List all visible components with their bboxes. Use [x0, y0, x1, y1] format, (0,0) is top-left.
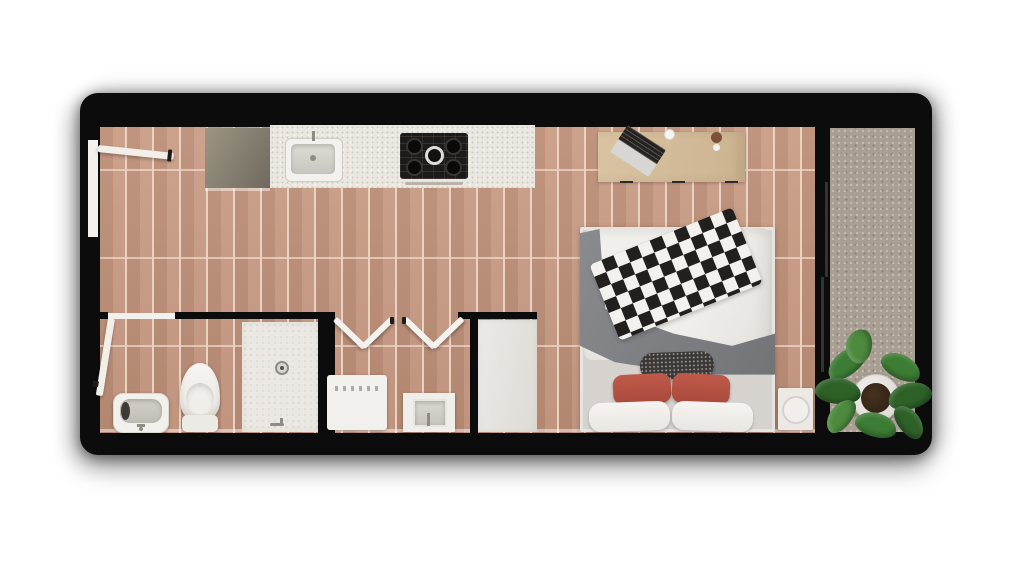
gas-stove: [400, 133, 468, 179]
wall-bathroom-stub: [100, 312, 108, 319]
washer-control-panel: [335, 386, 379, 391]
desk-drawer-pull: [620, 181, 633, 183]
closet-door-panel: [478, 320, 537, 432]
kitchen-sink: [285, 138, 343, 182]
washbasin: [113, 393, 169, 433]
shower-drain: [275, 361, 289, 375]
desk-saucer: [713, 144, 720, 151]
shower-drain-hole: [280, 366, 284, 370]
refrigerator: [205, 128, 270, 188]
utility-sink-basin: [413, 399, 447, 427]
stove-center-burner: [425, 146, 444, 165]
nightstand: [778, 388, 813, 430]
desk-drawer-pull: [725, 181, 738, 183]
white-pillow-left: [589, 401, 671, 433]
plant-soil: [861, 383, 891, 413]
sliding-glass-door-panel-1: [825, 182, 828, 277]
toilet-base: [182, 415, 218, 432]
white-pillow-right: [672, 401, 754, 433]
sliding-glass-door-panel-2: [821, 277, 824, 372]
stove-burner: [445, 138, 462, 155]
refrigerator-front-edge: [205, 188, 270, 191]
stove-burner: [406, 138, 423, 155]
wall-bathroom-top: [175, 312, 335, 319]
utility-sink: [403, 393, 455, 432]
bathroom-door-threshold: [108, 313, 175, 319]
entry-door-frame: [88, 140, 98, 237]
stove-burner: [406, 159, 423, 176]
washbasin-shadow: [121, 402, 130, 420]
stove-burner: [445, 159, 462, 176]
bifold-door-handle: [390, 317, 394, 324]
desk-drawer-pull: [672, 181, 685, 183]
toilet-seat: [186, 383, 214, 415]
desk-plant: [711, 132, 722, 143]
kitchen-faucet: [312, 131, 315, 141]
kitchen-sink-drain: [310, 155, 316, 161]
oven-handle: [405, 182, 463, 185]
nightstand-plate: [782, 396, 810, 424]
wall-closet-stub: [470, 312, 478, 433]
bifold-door-handle: [402, 317, 406, 324]
walk-in-shower: [242, 322, 318, 432]
toilet: [180, 363, 220, 433]
bathroom-door-handle: [92, 380, 99, 387]
wall-balcony-top: [815, 128, 830, 182]
washbasin-faucet-handle: [139, 427, 143, 431]
floorplan-render: [80, 93, 932, 455]
washing-machine: [327, 375, 387, 430]
utility-sink-faucet: [427, 413, 430, 426]
shower-faucet-spout: [280, 418, 283, 424]
cup: [664, 129, 675, 140]
